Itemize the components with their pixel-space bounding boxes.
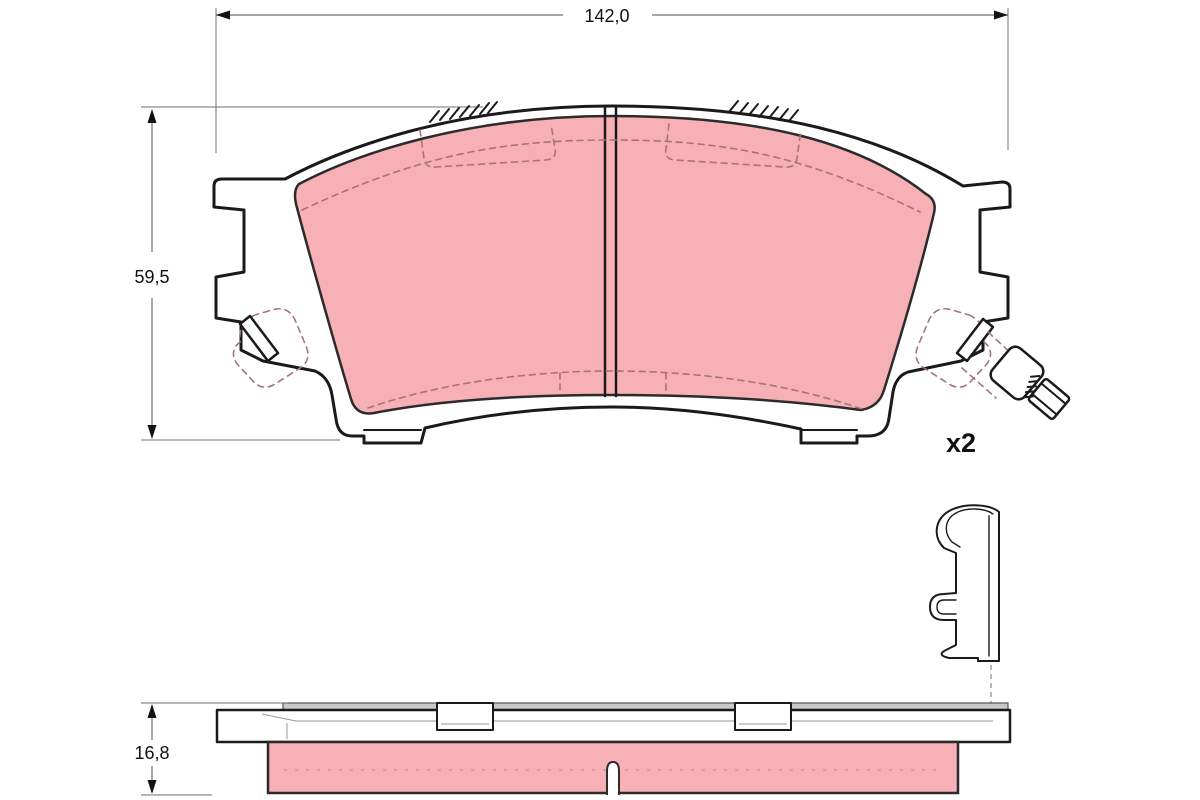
arrowhead-up-icon (148, 704, 157, 718)
edge-view (217, 703, 1010, 795)
backplate-edge (217, 710, 1010, 742)
wear-sensor (987, 343, 1070, 420)
arrowhead-down-icon (148, 780, 157, 794)
side-view (930, 505, 999, 707)
center-slot-fill (607, 762, 619, 795)
dimension-width-label: 142,0 (584, 6, 629, 26)
quantity-label: x2 (946, 428, 976, 458)
dimension-height-label: 59,5 (134, 267, 169, 287)
dimension-thickness-label: 16,8 (134, 743, 169, 763)
arrowhead-down-icon (148, 425, 157, 439)
arrowhead-up-icon (148, 109, 157, 123)
shim-tab-right (735, 703, 791, 730)
drawing-svg: 142,0 59,5 (0, 0, 1200, 800)
arrowhead-left-icon (216, 11, 230, 20)
brake-pad-technical-drawing: 142,0 59,5 (0, 0, 1200, 800)
front-view: x2 (214, 101, 1070, 458)
arrowhead-right-icon (994, 11, 1008, 20)
shim-tab-left (437, 703, 493, 730)
